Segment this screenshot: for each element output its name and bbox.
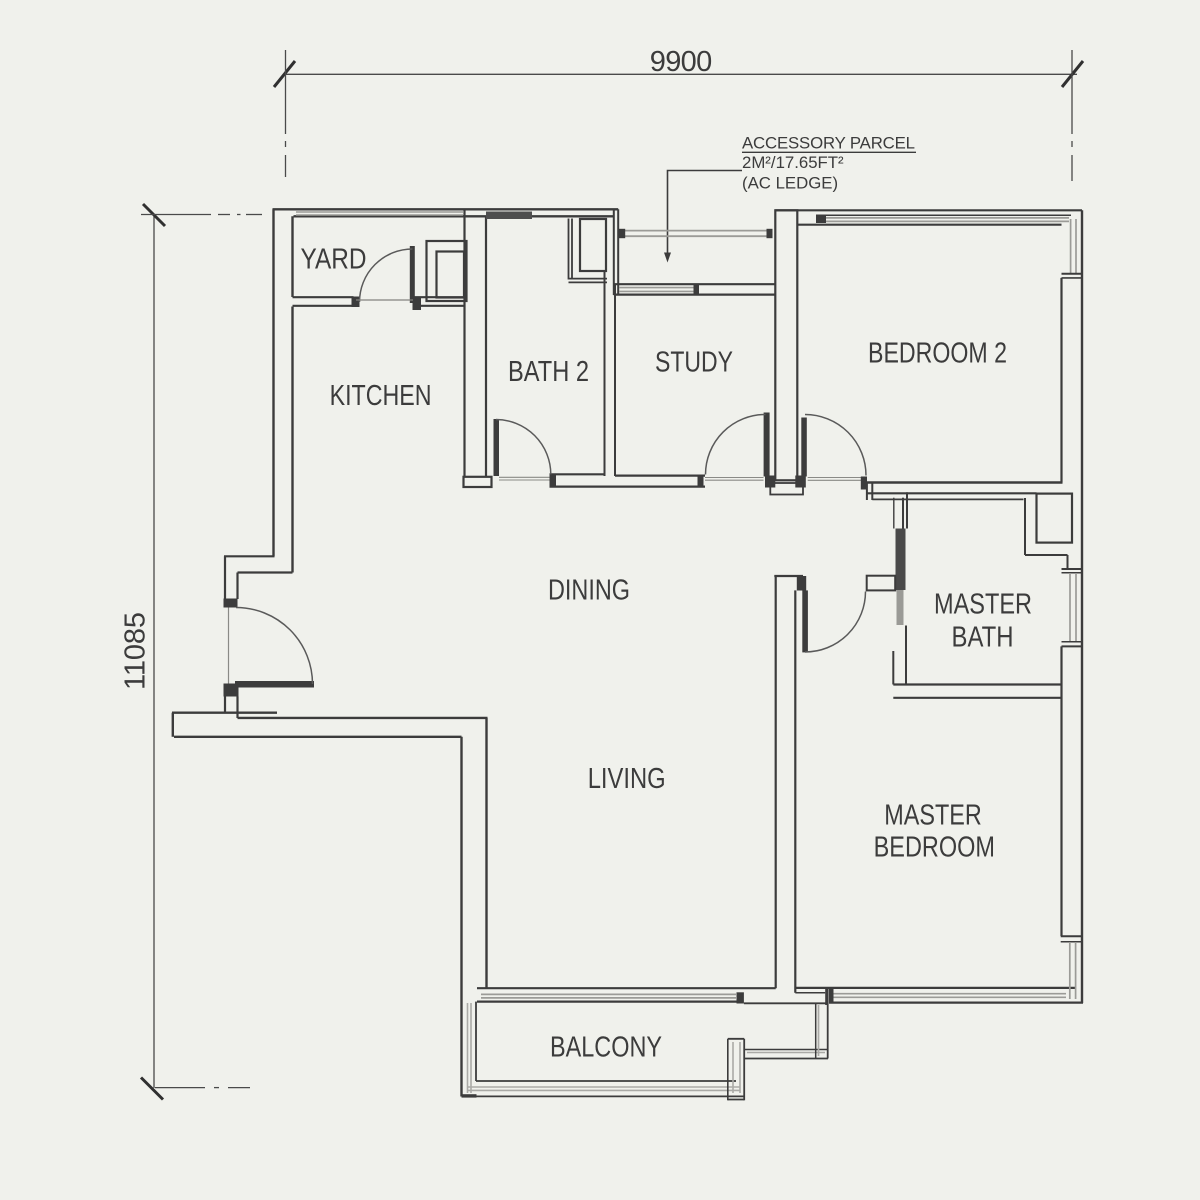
svg-text:11085: 11085 [120,612,152,690]
svg-text:9900: 9900 [650,46,713,78]
svg-text:BEDROOM: BEDROOM [874,832,995,864]
svg-text:BATH: BATH [952,622,1014,654]
svg-text:LIVING: LIVING [588,763,666,795]
svg-text:DINING: DINING [548,575,630,607]
svg-text:MASTER: MASTER [884,800,982,832]
svg-text:BATH 2: BATH 2 [508,356,589,388]
svg-text:BEDROOM 2: BEDROOM 2 [868,338,1007,370]
svg-text:KITCHEN: KITCHEN [330,380,432,412]
svg-text:BALCONY: BALCONY [550,1032,662,1064]
svg-text:YARD: YARD [301,244,367,276]
svg-text:2M²/17.65FT²: 2M²/17.65FT² [742,153,844,172]
svg-text:ACCESSORY PARCEL: ACCESSORY PARCEL [742,134,915,153]
svg-text:MASTER: MASTER [934,589,1032,621]
svg-text:(AC LEDGE): (AC LEDGE) [742,174,838,193]
svg-text:STUDY: STUDY [655,347,733,379]
